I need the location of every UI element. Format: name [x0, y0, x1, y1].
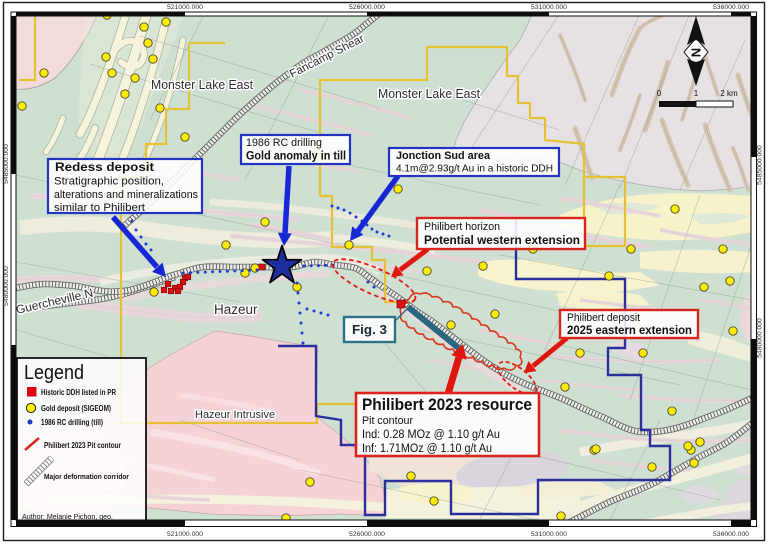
svg-text:531000.000: 531000.000	[531, 4, 567, 11]
svg-text:5480000.000: 5480000.000	[757, 318, 764, 358]
svg-text:Legend: Legend	[24, 362, 84, 384]
svg-text:1986 RC drilling (till): 1986 RC drilling (till)	[41, 418, 103, 427]
svg-text:5480000.000: 5480000.000	[3, 266, 10, 306]
svg-text:2 km: 2 km	[720, 89, 738, 98]
svg-text:536000.000: 536000.000	[713, 4, 749, 11]
svg-text:2025 eastern extension: 2025 eastern extension	[567, 325, 692, 337]
svg-text:Monster Lake East: Monster Lake East	[378, 87, 481, 101]
svg-text:526000.000: 526000.000	[349, 4, 385, 11]
svg-text:531000.000: 531000.000	[531, 531, 567, 538]
svg-text:Philibert horizon: Philibert horizon	[424, 221, 500, 233]
svg-text:Potential western extension: Potential western extension	[424, 233, 580, 247]
svg-text:1986 RC drilling: 1986 RC drilling	[246, 137, 322, 149]
svg-text:5485000.000: 5485000.000	[3, 144, 10, 184]
svg-text:Hazeur: Hazeur	[214, 302, 258, 317]
svg-text:Inf: 1.71MOz @ 1.10 g/t Au: Inf: 1.71MOz @ 1.10 g/t Au	[362, 443, 492, 455]
svg-text:Historic DDH listed in PR: Historic DDH listed in PR	[41, 388, 116, 397]
svg-text:Jonction Sud area: Jonction Sud area	[396, 150, 491, 162]
svg-text:Stratigraphic position,: Stratigraphic position,	[54, 176, 164, 188]
svg-text:Gold anomaly in till: Gold anomaly in till	[246, 151, 346, 163]
svg-text:4.1m@2.93g/t Au in a historic: 4.1m@2.93g/t Au in a historic DDH	[396, 163, 553, 175]
svg-text:N: N	[689, 48, 704, 57]
svg-text:Major deformation corridor: Major deformation corridor	[44, 472, 129, 481]
svg-text:Philibert 2023 Pit contour: Philibert 2023 Pit contour	[44, 441, 121, 450]
svg-text:Pit contour: Pit contour	[362, 415, 413, 427]
svg-text:alterations and mineralization: alterations and mineralizations	[54, 189, 198, 201]
svg-text:521000.000: 521000.000	[167, 531, 203, 538]
svg-text:Gold deposit (SIGEOM): Gold deposit (SIGEOM)	[41, 404, 111, 413]
svg-text:Ind: 0.28 MOz @ 1.10 g/t Au: Ind: 0.28 MOz @ 1.10 g/t Au	[362, 429, 500, 441]
svg-text:521000.000: 521000.000	[167, 4, 203, 11]
svg-text:526000.000: 526000.000	[349, 531, 385, 538]
svg-text:Philibert deposit: Philibert deposit	[567, 312, 640, 324]
svg-text:Fig. 3: Fig. 3	[352, 323, 387, 337]
svg-text:0: 0	[657, 89, 662, 98]
svg-text:536000.000: 536000.000	[713, 531, 749, 538]
svg-text:Philibert 2023 resource: Philibert 2023 resource	[362, 395, 532, 414]
svg-text:Hazeur Intrusive: Hazeur Intrusive	[195, 409, 275, 421]
svg-text:similar to Philibert: similar to Philibert	[54, 202, 145, 214]
svg-text:Redess deposit: Redess deposit	[55, 160, 154, 174]
svg-text:Monster Lake East: Monster Lake East	[151, 77, 253, 92]
svg-text:1: 1	[694, 89, 699, 98]
svg-text:5485000.000: 5485000.000	[757, 145, 764, 185]
